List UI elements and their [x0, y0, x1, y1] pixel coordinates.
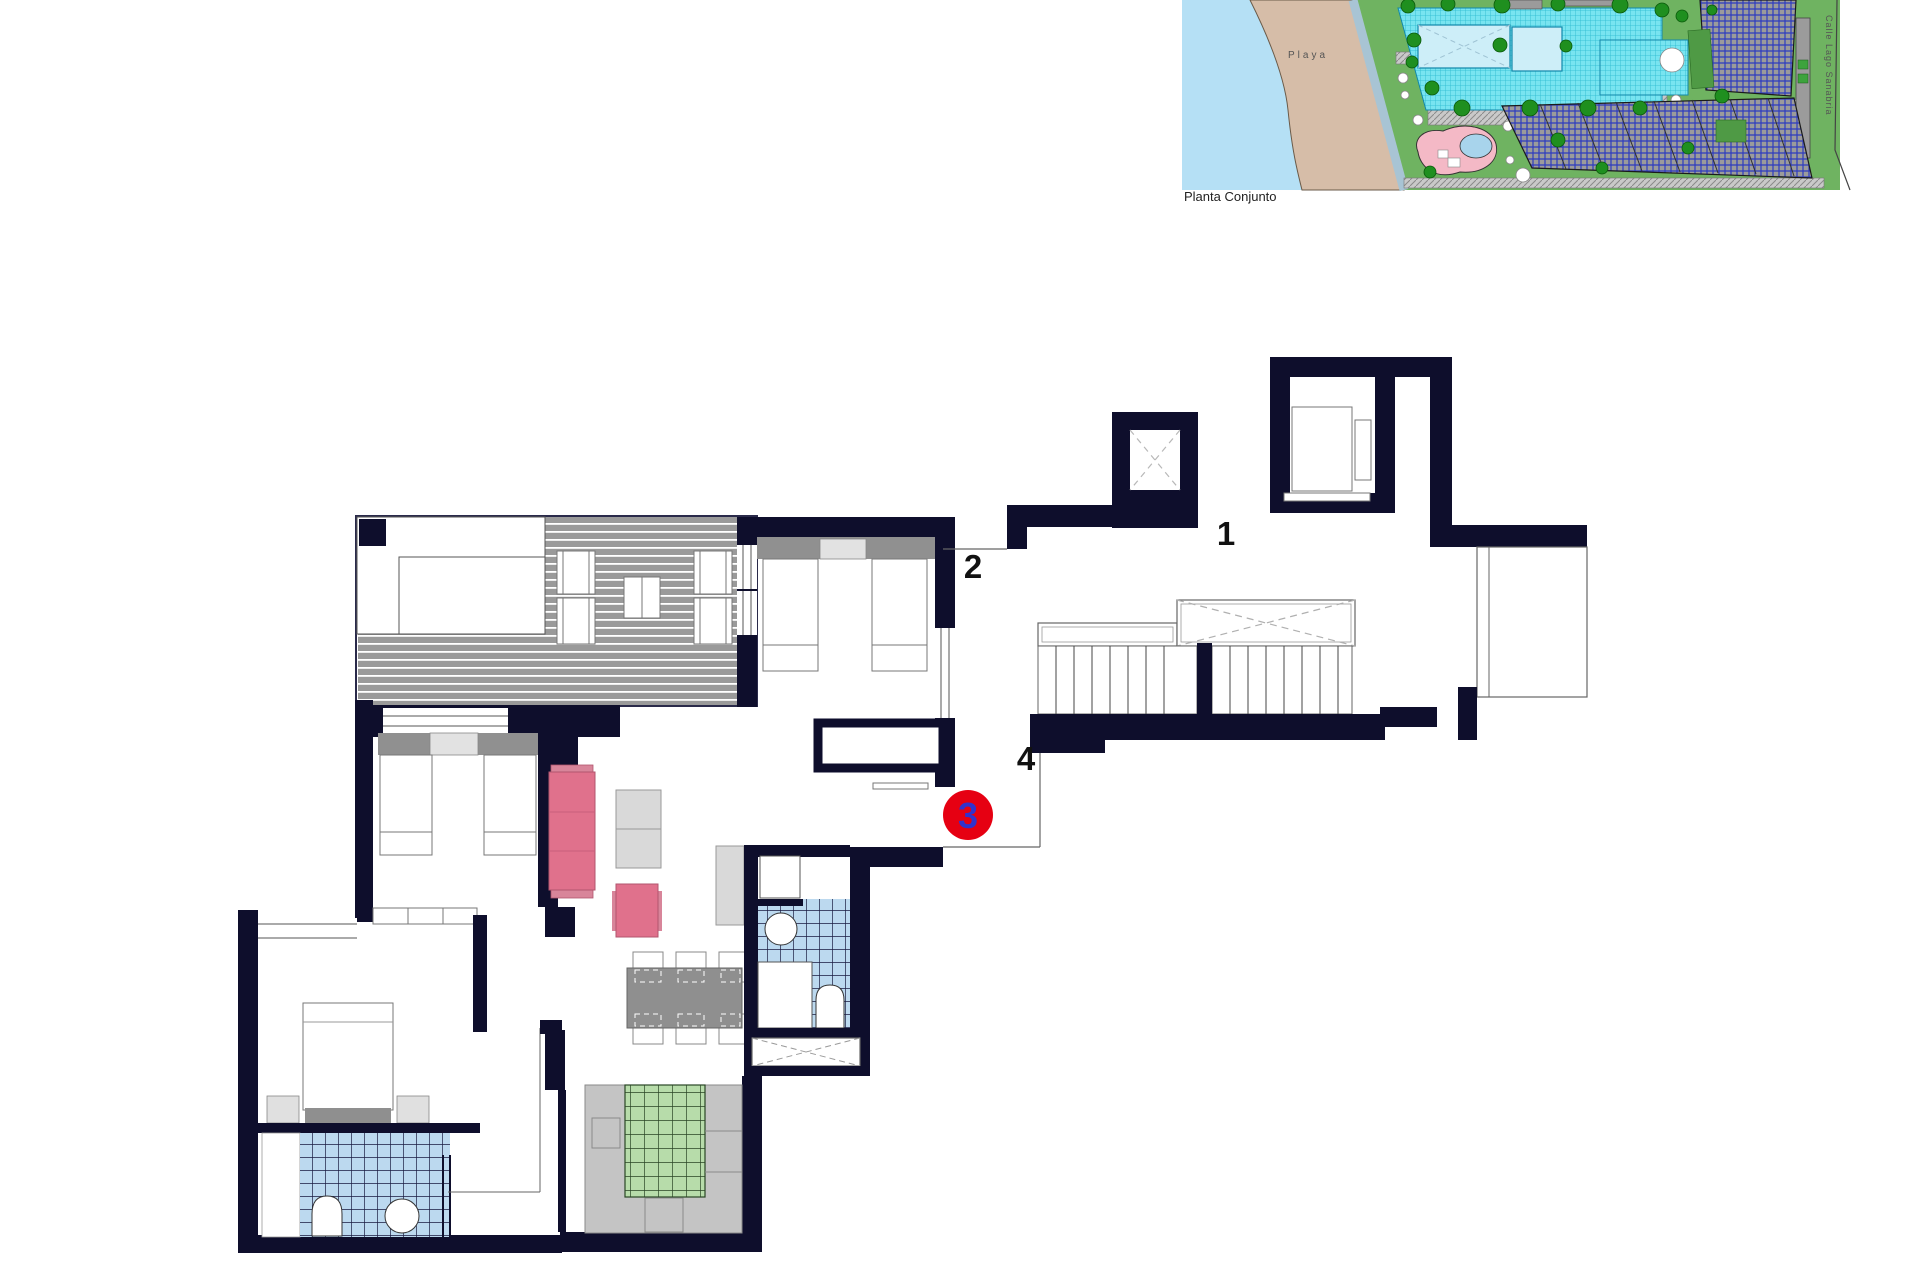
nightstand: [820, 539, 866, 559]
kitchen: [558, 1076, 762, 1252]
nightstand: [430, 733, 478, 755]
living-room: [538, 737, 749, 1044]
terrace-pillar: [359, 519, 386, 546]
elevator-room: [1270, 357, 1395, 513]
master-bedroom: [238, 910, 565, 1253]
terrace: [356, 516, 757, 767]
stair-core: [1007, 357, 1587, 753]
unit-3-marker: 3: [943, 790, 993, 840]
toilet: [312, 1196, 342, 1236]
bathroom-ensuite: [262, 1133, 450, 1237]
hall-closet: [752, 1038, 860, 1066]
dining-set: [627, 952, 749, 1044]
side-cabinet: [716, 846, 744, 925]
street-label: Calle Lago Sanabria: [1824, 15, 1834, 116]
shower: [758, 962, 812, 1028]
unit-4-label: 4: [1017, 740, 1036, 777]
double-bed: [267, 1003, 429, 1123]
armchair: [612, 884, 662, 937]
sink: [385, 1199, 419, 1233]
single-beds: [380, 755, 536, 855]
plan-canvas: Playa Calle Lago Sanabria Planta Conjunt…: [0, 0, 1920, 1280]
path-hatch-4: [1404, 178, 1824, 188]
wardrobe: [373, 908, 477, 924]
unit-1-label: 1: [1217, 515, 1235, 552]
site-plan-caption: Planta Conjunto: [1184, 189, 1277, 204]
door-leaf: [873, 783, 928, 789]
site-plan-inset: Playa Calle Lago Sanabria Planta Conjunt…: [1182, 0, 1850, 204]
bedroom-3: [355, 700, 538, 1032]
single-beds: [763, 559, 927, 671]
closet: [818, 723, 943, 768]
unit-3-number: 3: [958, 795, 978, 836]
stairs: [1030, 600, 1437, 753]
toilet: [816, 985, 844, 1028]
sink: [765, 913, 797, 945]
elevator-shaft: [1112, 412, 1198, 528]
kitchen-floor: [625, 1085, 705, 1197]
washer: [760, 856, 800, 898]
kitchen-sink: [592, 1118, 620, 1148]
unit-2-label: 2: [964, 548, 982, 585]
coffee-table: [616, 790, 661, 868]
sofa: [549, 765, 595, 898]
balcony-unit1: [1458, 547, 1587, 740]
beach-label: Playa: [1288, 50, 1328, 61]
floor-plan: 1 2 4 3: [238, 357, 1587, 1253]
swimming-pool-2: [1512, 27, 1562, 71]
floorplan-page: Playa Calle Lago Sanabria Planta Conjunt…: [0, 0, 1920, 1280]
bedroom-2: [737, 517, 955, 789]
